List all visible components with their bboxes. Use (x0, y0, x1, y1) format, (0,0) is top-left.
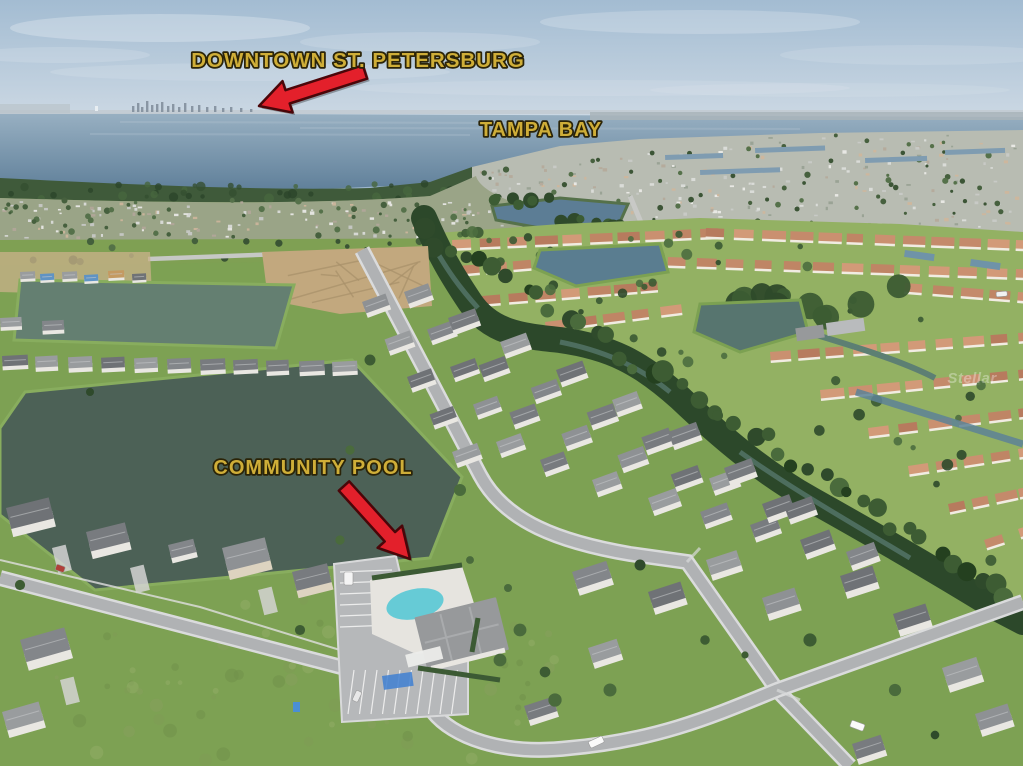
skyscraper (250, 109, 252, 112)
cloud (10, 14, 310, 42)
tree (524, 233, 532, 241)
distant-house (310, 211, 314, 214)
distant-house (941, 200, 945, 203)
distant-house (212, 235, 216, 237)
distant-house (350, 204, 353, 206)
distant-house (187, 205, 190, 208)
terracotta-roof (762, 230, 786, 240)
house (84, 274, 98, 284)
distant-house (24, 237, 28, 239)
tree (741, 651, 748, 658)
grass-patch (153, 714, 164, 725)
distant-tree (60, 231, 63, 234)
mangrove-tree (389, 183, 394, 188)
distant-house (138, 207, 142, 209)
distant-house (488, 210, 491, 213)
distant-house (691, 178, 695, 181)
tree (664, 238, 673, 247)
distant-house (826, 207, 828, 210)
distant-house (911, 141, 915, 143)
tree-mass (887, 274, 911, 298)
distant-house (448, 202, 452, 204)
downtown-st-petersburg-label: DOWNTOWN ST. PETERSBURG (191, 49, 525, 72)
distant-house (90, 223, 94, 226)
grass-patch (199, 754, 212, 766)
mangrove-tree (264, 193, 274, 203)
distant-house (167, 222, 171, 224)
tree (931, 731, 940, 740)
distant-house (655, 216, 657, 218)
distant-tree (32, 219, 37, 224)
distant-house (599, 167, 603, 169)
distant-house (990, 167, 993, 169)
distant-tree (379, 212, 382, 215)
distant-tree (242, 214, 246, 218)
distant-tree (886, 174, 889, 177)
canal-tree (857, 495, 870, 508)
distant-tree (463, 208, 466, 211)
distant-tree (925, 165, 928, 168)
tree (335, 535, 344, 544)
distant-house (752, 183, 755, 185)
terracotta-roof (987, 239, 1009, 249)
terracotta-roof (734, 229, 754, 239)
distant-house (863, 190, 867, 192)
distant-house (763, 211, 766, 214)
pond-ring-tree (527, 196, 537, 206)
skyscraper (198, 105, 200, 112)
distant-house (855, 186, 858, 189)
house (200, 358, 226, 375)
terracotta-home (905, 380, 923, 393)
distant-house (238, 224, 241, 226)
grass-patch (528, 640, 535, 647)
distant-house (943, 163, 947, 166)
distant-house (994, 181, 998, 183)
distant-tree (932, 203, 935, 206)
distant-tree (334, 226, 340, 232)
terracotta-home (513, 260, 532, 273)
pond-ring-tree (491, 194, 500, 203)
distant-house (133, 212, 136, 215)
distant-house (816, 204, 818, 207)
distant-house (193, 217, 197, 219)
distant-house (376, 224, 379, 226)
distant-house (944, 218, 948, 221)
canal-tree (612, 352, 627, 367)
terracotta-roof (959, 238, 981, 248)
distant-house (10, 205, 14, 207)
distant-house (763, 186, 766, 188)
distant-house (748, 206, 750, 209)
distant-house (20, 201, 24, 203)
distant-house (666, 182, 668, 184)
grass-patch (136, 688, 143, 695)
distant-tree (336, 206, 340, 210)
roof-ridge (134, 276, 144, 277)
distant-tree (295, 198, 302, 205)
distant-house (919, 223, 921, 225)
terracotta-home (963, 336, 985, 349)
distant-house (883, 147, 886, 150)
distant-tree (109, 207, 114, 212)
field-tree (109, 244, 116, 251)
distant-house (1014, 148, 1017, 150)
water-streak (90, 134, 470, 135)
distant-house (491, 172, 493, 174)
distant-house (316, 226, 318, 228)
tree (831, 376, 840, 385)
distant-tree (746, 146, 751, 151)
distant-house (453, 211, 457, 213)
terracotta-home (958, 267, 977, 279)
distant-house (91, 214, 95, 216)
distant-house (800, 205, 804, 207)
distant-house (951, 146, 953, 148)
skyscraper (214, 106, 216, 112)
tree (15, 580, 25, 590)
grass-patch (549, 655, 558, 664)
distant-house (311, 209, 313, 211)
distant-house (544, 169, 547, 172)
distant-house (492, 189, 496, 192)
roof-ridge (42, 276, 52, 277)
grass-patch (368, 720, 377, 729)
tree (630, 334, 638, 342)
distant-house (1015, 197, 1019, 200)
terracotta-home (645, 231, 665, 243)
tree (678, 350, 683, 355)
canal-tree (841, 487, 851, 497)
distant-house (661, 164, 665, 167)
terracotta-home (990, 334, 1007, 346)
grass-patch (213, 688, 219, 694)
tree (604, 684, 617, 697)
distant-house (157, 211, 159, 214)
canal-tree (540, 304, 554, 318)
distant-tree (394, 218, 397, 221)
distant-house (39, 204, 43, 207)
distant-house (1005, 222, 1009, 224)
distant-tree (562, 182, 567, 187)
terracotta-home (798, 348, 821, 361)
terracotta-roof (818, 232, 842, 242)
mangrove-tree (169, 192, 178, 201)
skyscraper (206, 107, 208, 112)
distant-house (345, 210, 348, 212)
tree (540, 667, 551, 678)
distant-house (679, 197, 682, 200)
pond-ring-tree (513, 199, 524, 210)
distant-house (828, 201, 832, 204)
distant-tree (6, 202, 10, 206)
tree (681, 249, 692, 260)
grass-patch (165, 680, 170, 685)
grass-patch (525, 681, 530, 686)
terracotta-roof (813, 262, 834, 272)
distant-house (955, 175, 959, 177)
distant-house (405, 232, 407, 234)
terracotta-home (908, 340, 926, 352)
distant-house (946, 158, 948, 160)
distant-house (628, 160, 632, 162)
distant-house (174, 214, 178, 216)
terracotta-home (762, 230, 786, 242)
field-tree (345, 244, 350, 249)
grass-patch (150, 699, 163, 712)
field-tree (192, 238, 198, 244)
distant-house (443, 203, 447, 205)
tree (853, 409, 865, 421)
distant-house (441, 218, 444, 221)
distant-house (332, 202, 336, 205)
distant-house (729, 148, 732, 150)
distant-house (882, 190, 886, 192)
distant-tree (259, 206, 265, 212)
distant-tree (829, 158, 834, 163)
distant-house (768, 137, 772, 139)
tree (803, 262, 813, 272)
terracotta-roof (1016, 240, 1023, 250)
water-streak (120, 122, 520, 123)
distant-tree (889, 182, 894, 187)
grass-patch (55, 675, 59, 679)
canal-tree (627, 364, 637, 374)
tree (86, 388, 94, 396)
terracotta-home (790, 231, 814, 243)
distant-house (574, 182, 577, 185)
distant-house (924, 139, 926, 141)
mangrove-tree (88, 188, 93, 193)
white-tower (95, 106, 98, 111)
distant-house (304, 205, 306, 207)
distant-house (908, 202, 912, 205)
distant-house (869, 188, 873, 191)
terracotta-roof (535, 235, 558, 245)
distant-tree (658, 179, 662, 183)
distant-house (216, 221, 220, 223)
mangrove-tree (20, 183, 28, 191)
grass-patch (211, 695, 216, 700)
distant-house (924, 172, 926, 174)
distant-tree (804, 172, 810, 178)
distant-house (584, 177, 586, 180)
distant-house (99, 214, 101, 216)
distant-tree (998, 209, 1003, 214)
grass-patch (130, 667, 136, 673)
distant-tree (231, 235, 235, 239)
distant-house (348, 226, 352, 229)
skyscraper (146, 101, 148, 112)
grass-patch (329, 722, 335, 728)
distant-house (553, 166, 556, 169)
distant-house (82, 224, 86, 226)
canal-tree (414, 218, 435, 239)
distant-house (226, 236, 229, 238)
tree (634, 559, 645, 570)
distant-house (683, 212, 687, 215)
canal-tree (461, 251, 473, 263)
distant-tree (152, 215, 156, 219)
distant-house (2, 210, 6, 212)
distant-house (38, 228, 40, 230)
terracotta-home (880, 342, 900, 354)
terracotta-roof (590, 233, 613, 243)
distant-house (718, 216, 722, 218)
grass-patch (466, 753, 478, 765)
canal-tree (570, 314, 586, 330)
house (132, 273, 146, 283)
distant-house (730, 185, 734, 187)
distant-house (133, 205, 136, 207)
terracotta-home (931, 237, 955, 249)
grass-patch (519, 694, 526, 701)
grass-patch (124, 687, 130, 693)
distant-house (302, 210, 306, 213)
terracotta-roof (784, 261, 801, 271)
distant-house (136, 222, 140, 225)
distant-house (593, 186, 596, 188)
distant-house (183, 213, 187, 215)
distant-house (76, 205, 80, 207)
distant-house (639, 189, 642, 192)
distant-tree (930, 144, 934, 148)
canal-tree (801, 463, 813, 475)
canal-tree (762, 428, 775, 441)
distant-tree (907, 142, 911, 146)
house (134, 357, 158, 373)
skyscraper (191, 106, 193, 112)
distant-house (451, 222, 455, 225)
distant-house (501, 225, 504, 227)
terracotta-home (813, 262, 835, 274)
tree (345, 445, 354, 454)
distant-house (672, 188, 676, 190)
distant-house (248, 211, 251, 214)
house (68, 356, 93, 373)
distant-house (346, 212, 348, 214)
distant-house (498, 170, 500, 173)
distant-tree (351, 206, 357, 212)
distant-house (975, 194, 979, 196)
tree (657, 347, 667, 357)
distant-tree (590, 159, 595, 164)
distant-tree (463, 217, 466, 220)
distant-house (856, 160, 860, 162)
house (2, 355, 28, 371)
distant-house (127, 207, 131, 209)
distant-tree (953, 212, 956, 215)
distant-house (90, 207, 94, 210)
distant-tree (960, 178, 965, 183)
grass-patch (514, 719, 520, 725)
distant-house (120, 203, 124, 206)
terracotta-roof (929, 266, 950, 276)
distant-house (978, 226, 980, 228)
distant-house (517, 183, 521, 185)
distant-house (873, 150, 876, 153)
grass-patch (402, 731, 413, 742)
terracotta-home (871, 264, 895, 276)
distant-house (509, 187, 511, 189)
distant-house (962, 219, 966, 221)
grass-patch (262, 629, 270, 637)
distant-house (743, 188, 745, 191)
mangrove-tree (115, 182, 122, 189)
skyscraper (141, 107, 143, 112)
distant-house (620, 184, 624, 187)
distant-house (603, 168, 607, 171)
distant-house (710, 209, 713, 212)
distant-house (76, 236, 80, 239)
distant-house (802, 166, 805, 169)
terracotta-home (959, 238, 981, 250)
tree (578, 309, 584, 315)
tree (797, 244, 803, 250)
tree (467, 226, 478, 237)
mangrove-tree (421, 180, 429, 188)
grass-patch (240, 600, 250, 610)
mangrove-tree (145, 182, 151, 188)
tree-mass (848, 291, 875, 318)
tree (618, 288, 628, 298)
terracotta-home (697, 258, 717, 270)
grass-patch (545, 630, 552, 637)
distant-house (946, 135, 948, 137)
distant-house (591, 189, 594, 192)
distant-house (761, 156, 765, 159)
distant-house (363, 232, 366, 235)
distant-house (862, 214, 864, 217)
distant-house (955, 223, 958, 225)
mangrove-tree (229, 189, 237, 197)
distant-tree (407, 219, 410, 222)
community-pool-label: COMMUNITY POOL (213, 457, 412, 479)
house (42, 320, 64, 335)
distant-house (757, 208, 760, 211)
distant-tree (482, 170, 487, 175)
distant-house (663, 198, 665, 200)
distant-house (1009, 211, 1012, 213)
distant-house (228, 228, 232, 231)
canal-tree (483, 257, 502, 276)
skyscraper (184, 103, 186, 112)
house (0, 317, 22, 331)
distant-tree (864, 138, 869, 143)
mangrove-tree (155, 183, 162, 190)
terracotta-home (562, 234, 582, 246)
distant-house (278, 210, 281, 213)
canal-tree (868, 498, 887, 517)
distant-house (240, 201, 243, 203)
tree (648, 278, 656, 286)
terracotta-home (631, 309, 649, 322)
distant-tree (629, 170, 633, 174)
tree (985, 555, 996, 566)
tree (716, 260, 721, 265)
terracotta-home (755, 260, 772, 272)
tree (466, 556, 474, 564)
tree (918, 317, 924, 323)
distant-house (370, 217, 374, 219)
grass-patch (178, 680, 183, 685)
house (40, 273, 54, 283)
distant-house (28, 219, 31, 222)
house (167, 358, 191, 374)
tree (548, 693, 561, 706)
distant-house (66, 235, 69, 238)
distant-house (573, 173, 576, 175)
